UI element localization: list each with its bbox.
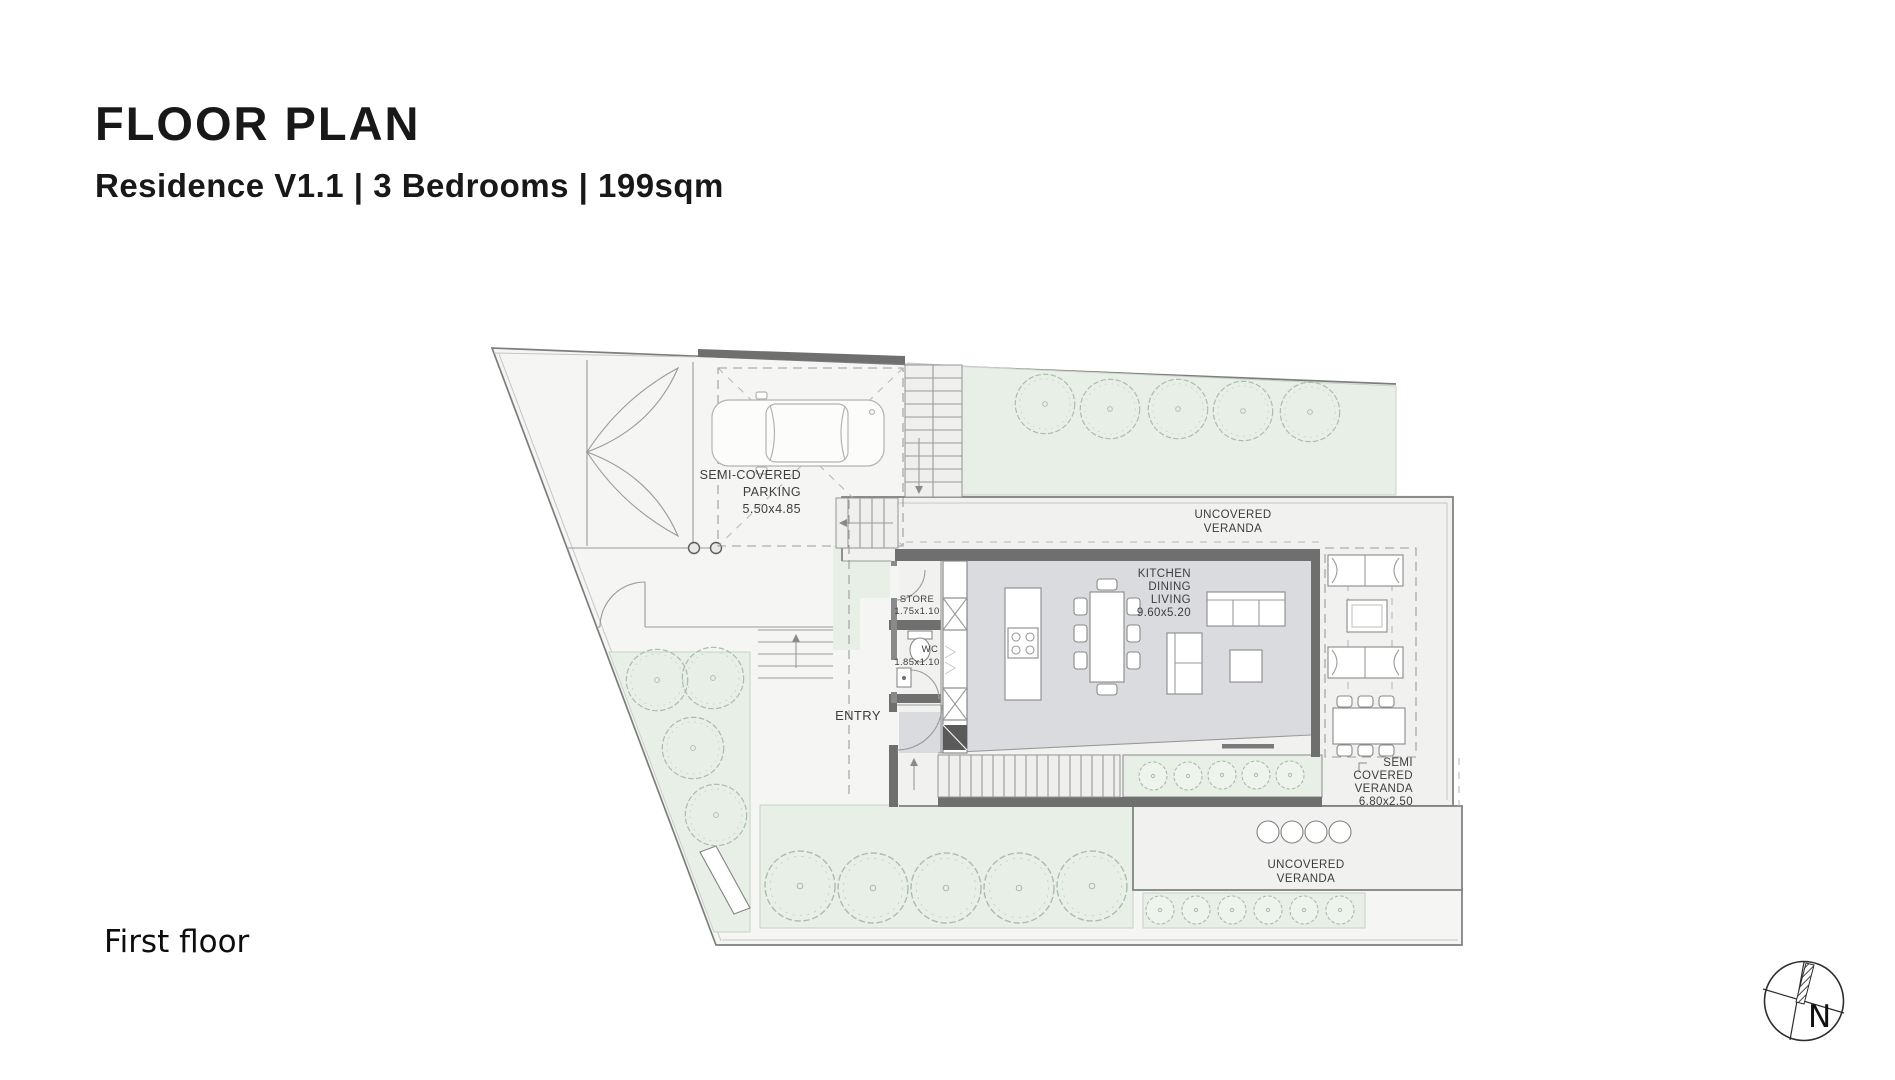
- shrub-icon: [1218, 896, 1246, 924]
- shrub-icon: [1276, 761, 1304, 789]
- living-label: LIVING: [1151, 594, 1191, 606]
- shrub-icon: [1146, 896, 1174, 924]
- sun-loungers: [1328, 555, 1403, 586]
- kitchen-island: [1005, 588, 1041, 700]
- garden-bottom: [760, 805, 1133, 928]
- living-dims: 9.60x5.20: [1137, 607, 1191, 619]
- parking-label: SEMI-COVERED: [700, 468, 801, 482]
- entry-label: ENTRY: [835, 708, 881, 723]
- car-icon: [712, 392, 884, 474]
- closet-strip: [943, 561, 967, 753]
- veranda-semi-label: VERANDA: [1355, 783, 1413, 795]
- veranda-semi-label: SEMI: [1383, 757, 1413, 769]
- compass-north-label: N: [1808, 999, 1831, 1035]
- compass-needle-icon: [1796, 963, 1814, 1004]
- garden-top-right: [906, 364, 1396, 495]
- wall-top: [895, 549, 1320, 561]
- shrub-icon: [1242, 761, 1270, 789]
- shrub-icon: [1182, 896, 1210, 924]
- upper-staircase: [905, 365, 962, 497]
- wall-bottom: [938, 797, 1322, 807]
- sun-loungers: [1328, 647, 1403, 678]
- veranda-top-label: VERANDA: [1204, 523, 1262, 535]
- store-label: STORE: [900, 594, 935, 605]
- bollard-icon: [689, 543, 700, 554]
- mid-staircase: [836, 498, 898, 548]
- parking-dims: 5.50x4.85: [742, 502, 801, 516]
- shrub-icon: [1326, 896, 1354, 924]
- floor-plan-canvas: SEMI-COVERED PARKING 5.50x4.85 UNCOVERED…: [0, 0, 1895, 1080]
- wc-dims: 1.85x1.10: [894, 657, 939, 668]
- wall-post: [889, 745, 898, 807]
- veranda-top-label: UNCOVERED: [1194, 509, 1271, 521]
- veranda-semi-label: COVERED: [1353, 770, 1413, 782]
- shrub-icon: [1254, 896, 1282, 924]
- sofa-small: [1167, 633, 1202, 694]
- wall-right-glass: [1311, 556, 1320, 757]
- parking-label: PARKING: [743, 485, 801, 499]
- coffee-table: [1230, 650, 1262, 682]
- window-ledge: [1222, 744, 1274, 749]
- shrub-icon: [1174, 762, 1202, 790]
- store-dims: 1.75x1.10: [894, 606, 939, 617]
- wc-label: WC: [922, 644, 939, 655]
- shrub-icon: [1208, 761, 1236, 789]
- compass-rose: N: [1763, 962, 1844, 1041]
- sofa-large: [1207, 592, 1285, 626]
- veranda-bottom-label: VERANDA: [1277, 873, 1335, 885]
- shrub-icon: [1290, 896, 1318, 924]
- outdoor-dining-set: [1333, 696, 1405, 756]
- side-table: [1347, 600, 1387, 632]
- veranda-bottom-label: UNCOVERED: [1267, 859, 1344, 871]
- shrub-icon: [1139, 762, 1167, 790]
- living-label: KITCHEN: [1138, 568, 1191, 580]
- living-label: DINING: [1148, 581, 1191, 593]
- cooktop-icon: [1008, 628, 1038, 658]
- lower-staircase: [910, 755, 1120, 797]
- veranda-semi-dims: 6.80x2.50: [1359, 796, 1413, 808]
